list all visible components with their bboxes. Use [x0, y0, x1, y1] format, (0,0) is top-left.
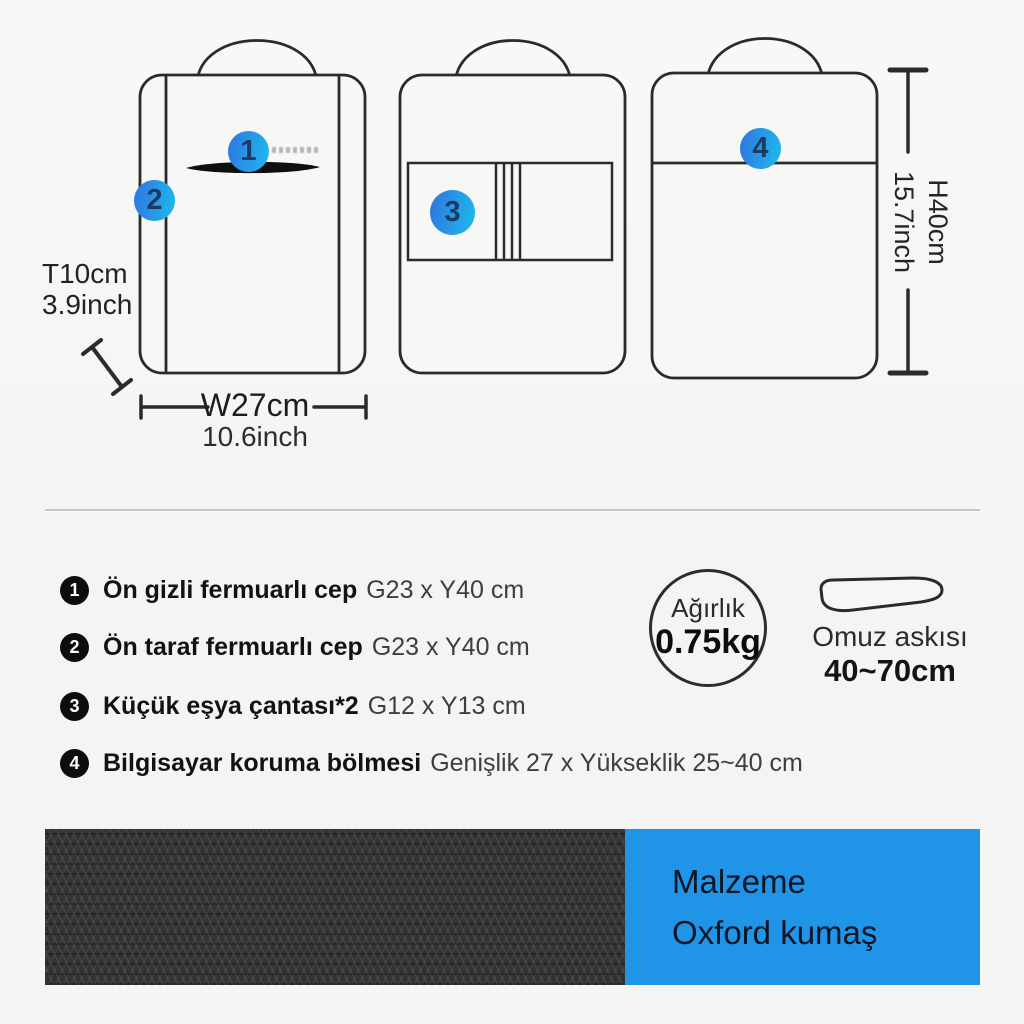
marker-4: 4	[740, 128, 781, 169]
dimension-depth-line	[83, 340, 131, 394]
strap-label: Omuz askısı	[805, 621, 975, 653]
depth-inch: 3.9inch	[42, 289, 132, 320]
material-box: Malzeme Oxford kumaş	[625, 829, 980, 985]
feature-detail: G23 x Y40 cm	[366, 576, 524, 605]
feature-detail: G12 x Y13 cm	[368, 692, 526, 721]
feature-row-4: 4 Bilgisayar koruma bölmesi Genişlik 27 …	[60, 744, 803, 782]
dimension-depth-label: T10cm 3.9inch	[42, 258, 132, 321]
section-divider	[45, 509, 980, 511]
fabric-swatch	[45, 829, 625, 985]
dimension-height-label: H40cm 15.7inch	[850, 154, 990, 290]
bag-back-view	[652, 39, 877, 379]
feature-title: Bilgisayar koruma bölmesi	[103, 749, 421, 778]
feature-detail: G23 x Y40 cm	[372, 633, 530, 662]
feature-row-3: 3 Küçük eşya çantası*2 G12 x Y13 cm	[60, 687, 526, 725]
feature-row-1: 1 Ön gizli fermuarlı cep G23 x Y40 cm	[60, 571, 524, 609]
feature-title: Ön gizli fermuarlı cep	[103, 576, 357, 605]
material-value: Oxford kumaş	[672, 914, 980, 952]
weight-value: 0.75kg	[655, 623, 761, 662]
marker-3: 3	[430, 190, 475, 235]
feature-detail: Genişlik 27 x Yükseklik 25~40 cm	[430, 749, 803, 778]
height-cm: H40cm	[920, 179, 954, 265]
marker-2: 2	[134, 180, 175, 221]
material-label: Malzeme	[672, 863, 980, 901]
feature-title: Ön taraf fermuarlı cep	[103, 633, 363, 662]
depth-cm: T10cm	[42, 258, 132, 289]
feature-badge-1: 1	[60, 576, 89, 605]
feature-row-2: 2 Ön taraf fermuarlı cep G23 x Y40 cm	[60, 628, 530, 666]
feature-title: Küçük eşya çantası*2	[103, 692, 359, 721]
strap-range: 40~70cm	[805, 653, 975, 689]
height-inch: 15.7inch	[886, 171, 920, 273]
dimension-width-inch: 10.6inch	[150, 421, 360, 452]
marker-1: 1	[228, 131, 269, 172]
dimension-width-cm: W27cm	[150, 388, 360, 424]
feature-badge-4: 4	[60, 749, 89, 778]
feature-badge-3: 3	[60, 692, 89, 721]
weight-circle: Ağırlık 0.75kg	[649, 569, 767, 687]
feature-badge-2: 2	[60, 633, 89, 662]
material-banner: Malzeme Oxford kumaş	[45, 829, 980, 985]
shoulder-strap-icon	[821, 578, 942, 611]
product-infographic: 1 2 3 4 T10cm 3.9inch W27cm 10.6inch H40…	[0, 0, 1024, 1024]
weight-label: Ağırlık	[671, 594, 745, 623]
fine-print-smudge	[272, 147, 320, 153]
